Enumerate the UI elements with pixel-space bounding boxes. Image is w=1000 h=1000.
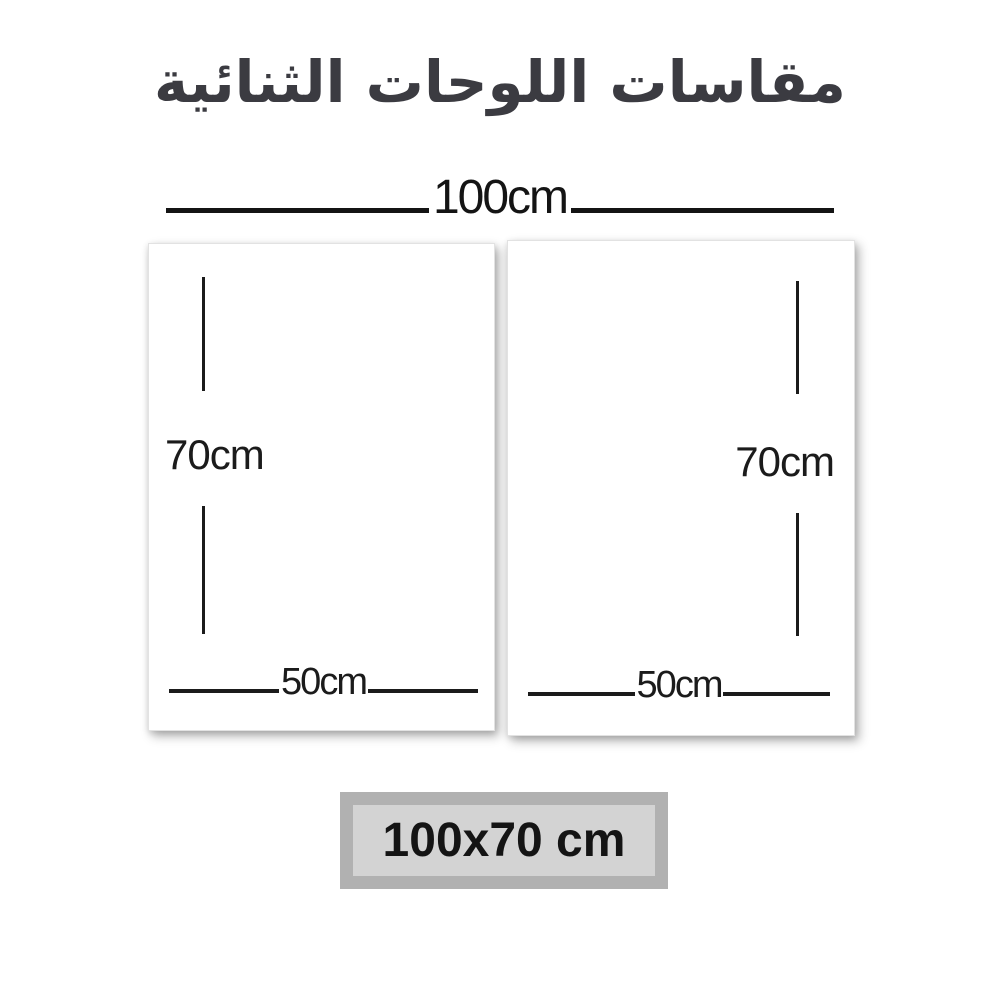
height-tick-top bbox=[202, 277, 205, 391]
dimension-line-left bbox=[169, 689, 279, 693]
panel-right-height-label: 70cm bbox=[735, 441, 834, 483]
dimension-line-right bbox=[571, 208, 834, 213]
dimension-line-right bbox=[723, 692, 830, 696]
page-title: مقاسات اللوحات الثنائية bbox=[0, 48, 1000, 116]
height-tick-bottom bbox=[202, 506, 205, 634]
panel-right-width-label: 50cm bbox=[635, 670, 724, 701]
dimension-line-right bbox=[368, 689, 478, 693]
dimension-line-left bbox=[528, 692, 635, 696]
dimension-line-left bbox=[166, 208, 429, 213]
height-tick-top bbox=[796, 281, 799, 394]
total-width-dimension: 100cm bbox=[166, 178, 834, 219]
size-badge: 100x70 cm bbox=[340, 792, 668, 889]
panel-sizes-diagram: مقاسات اللوحات الثنائية 100cm 70cm 50cm … bbox=[0, 0, 1000, 1000]
panel-left-width-label: 50cm bbox=[279, 667, 368, 698]
panel-right-width-dimension: 50cm bbox=[528, 670, 830, 701]
panel-right: 70cm 50cm bbox=[507, 240, 855, 736]
total-width-label: 100cm bbox=[429, 178, 571, 219]
panel-left: 70cm 50cm bbox=[148, 243, 495, 731]
panel-left-width-dimension: 50cm bbox=[169, 667, 478, 698]
height-tick-bottom bbox=[796, 513, 799, 636]
size-badge-label: 100x70 cm bbox=[353, 805, 655, 876]
panel-left-height-label: 70cm bbox=[165, 434, 264, 476]
